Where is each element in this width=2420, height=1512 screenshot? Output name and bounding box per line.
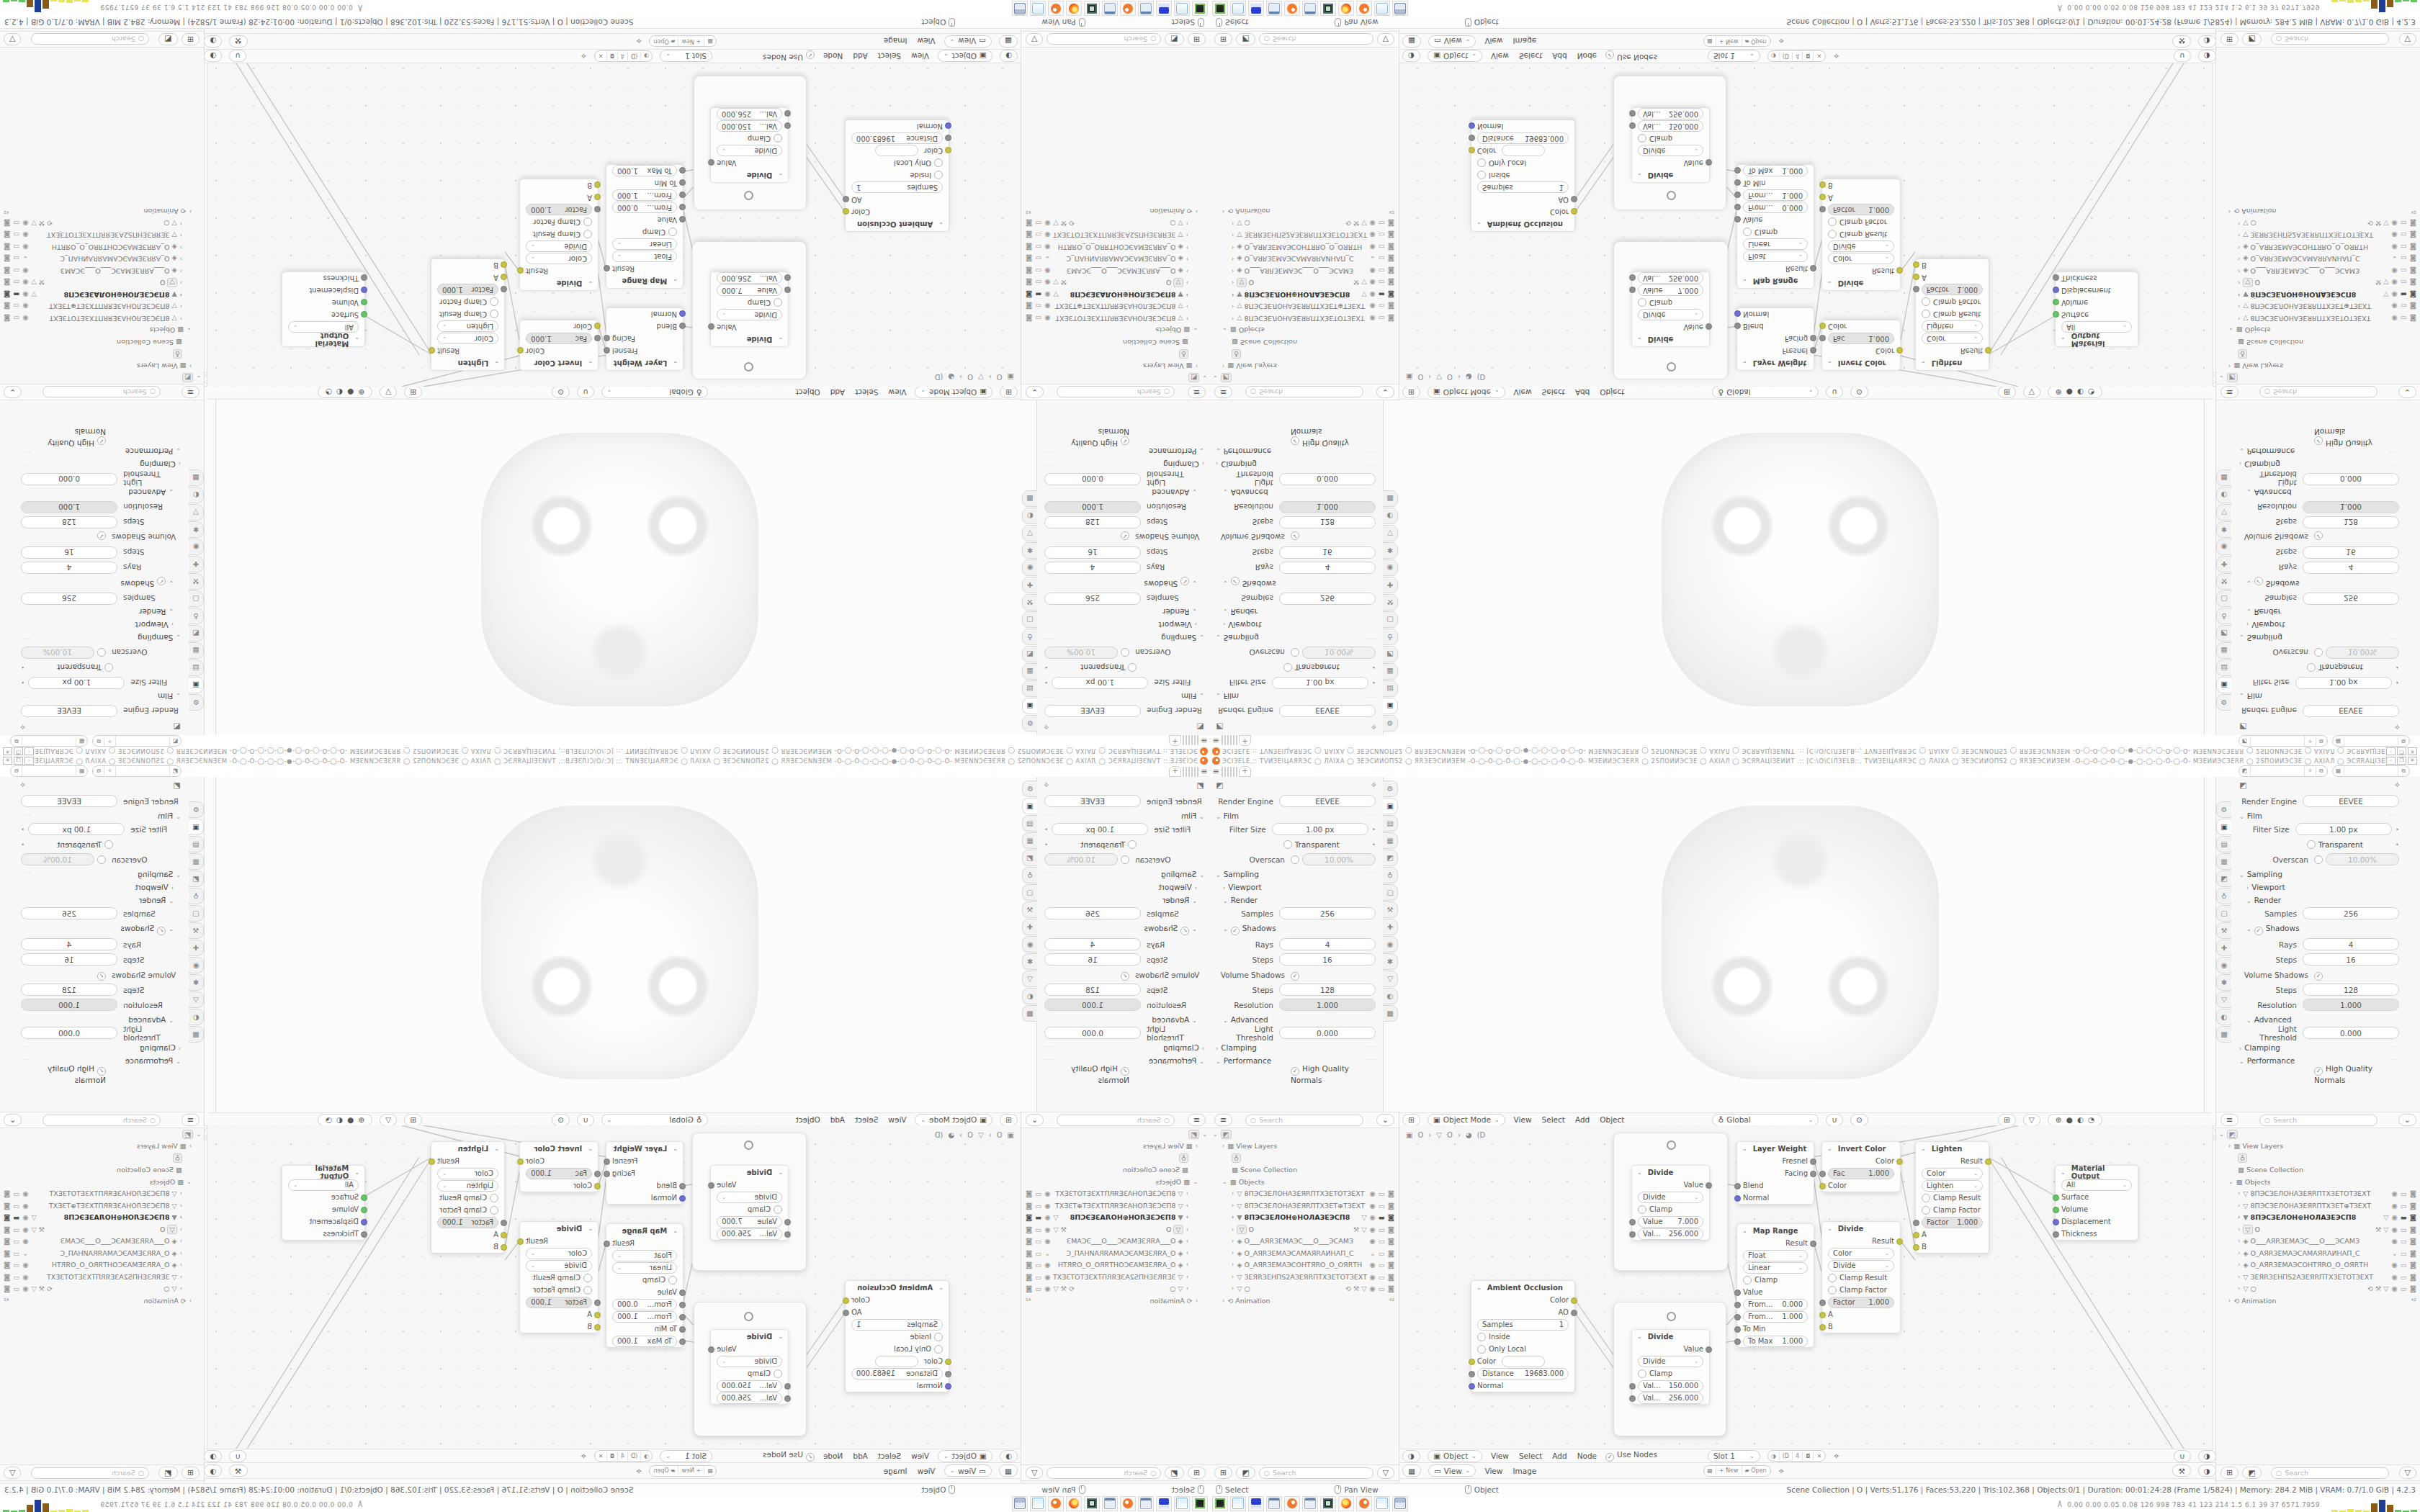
tool-dropdown[interactable]: ⚒ [229,1464,247,1477]
outliner-row[interactable]: ▩Scene Collection [0,1164,204,1176]
outliner-row[interactable]: ›▽8ПЭСЗЕЛОНАЗЕЯRПТХЗЕТ⊕ТЗЕХТ◉▭◙ [1210,1200,1399,1212]
menu-view[interactable]: View [1512,1115,1533,1124]
menu-hamburger-icon[interactable]: ≡ [1198,767,1210,777]
outliner-row[interactable]: ›◈O_АЯRЗЕМАЭСАМАЯRАИНАП_С⌄▭◙ [1021,253,1210,266]
menu-view[interactable]: View [1512,388,1533,397]
tool-dropdown[interactable]: ⚒ [229,35,247,48]
property-tab-icon[interactable]: ✚ [1383,919,1398,935]
pin-icon[interactable]: ✧ [1043,722,1049,732]
steps-field[interactable]: 16 [2303,546,2399,559]
outliner-row[interactable]: ›▽ЗЕЯRЗЕНПЅ2АЗЕЯRПТХЗЕТОТЗЕХТ◉▭◙ [0,230,204,242]
image-selector[interactable]: ▦ + New ▰ Open [649,36,716,48]
tool-dropdown[interactable]: ⚒ [2172,35,2190,48]
samples-field[interactable]: 256 [1044,593,1141,605]
node-map-range[interactable]: ⌄Map Range Result Float⌄ Linear⌄ Clamp V… [606,1223,684,1348]
advanced-subsection[interactable]: ⌄Advanced [14,487,187,500]
node-divide-math-2[interactable]: ⌄Divide Value Divide⌄ Clamp Val...150.00… [710,107,789,183]
filter-size-field[interactable]: 1.00 px [2295,677,2392,689]
advanced-subsection[interactable]: ⌄Advanced [1037,1012,1210,1025]
advanced-subsection[interactable]: ⌄Advanced [14,1012,187,1025]
target-dropdown[interactable]: All⌄ [288,322,359,333]
property-tab-icon[interactable]: ♁ [189,608,204,624]
property-tab-icon[interactable]: ◐ [189,487,204,503]
outliner-row[interactable]: ›▼8ПЭСЗЕЛОН⊕НОЛАЗЕЭСП8▽◉▬◙ [2216,1212,2420,1224]
node-divide-math-2[interactable]: ⌄Divide Value Divide⌄ Clamp Val...150.00… [710,1329,789,1405]
image-id-selector[interactable]: ▦⧉ [2332,736,2410,747]
3d-viewport[interactable] [215,400,1021,735]
property-tab-icon[interactable]: ◩ [1383,646,1398,662]
shading-buttons[interactable]: ⊕●◐◔ [318,387,372,399]
outliner-row[interactable]: ›◈O___АЯRЗЕМАЭС___O___ЭСАМЗ◉▭◙ [1021,1236,1210,1248]
orientation-dropdown[interactable]: ♁Global⌄ [601,1114,708,1126]
outliner-row[interactable]: ▩Scene Collection [2216,336,2420,348]
clamp-checkbox[interactable]: Clamp [642,228,665,236]
property-tab-icon[interactable]: ▩ [1383,1005,1398,1022]
workspace-tab[interactable] [1197,767,1198,777]
color-swatch[interactable] [1502,1356,1545,1367]
outliner-row[interactable]: ›▽ЗЕЯRЗЕНПЅ2АЗЕЯRПТХЗЕТОТЗЕХТ◉▭◙ [0,1271,204,1283]
outliner-row[interactable]: ⌄◩ [0,372,204,384]
material-id-selector[interactable]: ◩✧⧉ [2238,765,2328,777]
calculator2-icon[interactable] [1302,1496,1318,1511]
console-app-icon[interactable] [1192,1496,1208,1511]
scene-dropdown[interactable]: ◩ [1165,33,1183,45]
render-engine-dropdown[interactable]: EEVEE [1044,795,1141,807]
outliner-row[interactable]: ›▽8ПЭСЗЕЛОНАЗЕЯRПТХЗЕТ⊕ТЗЕХТ◉▭◙ [2216,1200,2420,1212]
clamp-factor-checkbox[interactable]: Clamp Factor [533,1286,581,1294]
property-tab-icon[interactable]: ▢ [1022,611,1037,628]
property-tab-icon[interactable]: ◩ [1022,646,1037,662]
node-material-output[interactable]: ⌄Material Output All⌄ Surface Volume Dis… [2055,1165,2138,1241]
clamp-checkbox[interactable]: Clamp [1649,135,1672,143]
outliner-row[interactable]: ⌄▩Objects [1210,325,1399,337]
mode-dropdown[interactable]: ▣Object Mode⌄ [915,387,992,399]
open-image-button[interactable]: ▰ Open [1742,1466,1770,1475]
filter-dropdown[interactable]: ▽ [4,1467,21,1479]
display-mode-dropdown[interactable]: ⊞ [181,33,200,45]
shading-buttons[interactable]: ⊕●◐◔ [318,1114,372,1126]
display-mode-dropdown[interactable]: ≡ [2220,386,2238,398]
menu-node[interactable]: Node [1576,52,1598,60]
property-tab-icon[interactable]: ▽ [1383,971,1398,987]
operation-dropdown[interactable]: Divide⌄ [1638,1192,1703,1203]
fax-printer-icon[interactable] [1012,1496,1028,1511]
property-tab-icon[interactable]: ✱ [1022,953,1037,970]
property-tab-icon[interactable]: ◉ [1383,936,1398,953]
outliner-row[interactable]: ›◈O___АЯRЗЕМАЭС___O___ЭСАМЗ◉▭◙ [1210,1236,1399,1248]
material-id-selector[interactable]: ◩✧⧉ [2238,736,2328,747]
outliner-row[interactable]: ›⟲Animation⁴² [0,206,204,218]
steps-field[interactable]: 16 [1279,546,1376,559]
calculator-icon[interactable] [1138,1496,1154,1511]
outliner-row[interactable]: ⌄▩Objects [0,325,204,337]
node-divide-math-1[interactable]: ⌄Divide Value Divide⌄ Clamp Value7.000 V… [1631,271,1710,347]
outliner-row[interactable]: ›▽8ПЭСЗЕЛОНАЗЕЯRПТХЗЕТОТЗЕХТ◉▭◙ [0,312,204,325]
property-tab-icon[interactable]: ⚒ [1383,901,1398,918]
property-tab-icon[interactable]: ▩ [2216,1026,2231,1043]
outliner-row[interactable]: ›▦View Layers [1021,360,1210,372]
property-tab-icon[interactable]: ▢ [1383,884,1398,901]
menu-view[interactable]: View [1489,52,1510,60]
menu-hamburger-icon[interactable]: ≡ [1210,735,1222,745]
property-tab-icon[interactable]: ✚ [1022,577,1037,593]
image-id-selector[interactable]: ▦⧉ [10,765,88,777]
outliner-row[interactable]: ›◈O_АЯRЗЕМАЭСОНТЯRО_О_ОЯRТН◉▭◙ [1210,241,1399,253]
property-tab-icon[interactable]: ✚ [189,556,204,572]
outliner-tree[interactable]: ⌄◩›▦View Layers♁▩Scene Collection⌄▩Objec… [0,206,204,384]
overscan-checkbox[interactable]: 10.00% [1291,853,1376,865]
slot-dropdown[interactable]: Slot 1⌄ [1708,50,1760,63]
menu-select[interactable]: Select [1518,1452,1543,1460]
filter-size-field[interactable]: 1.00 px [28,677,125,689]
pin-icon[interactable]: ✧ [1371,722,1377,732]
viewport-subsection[interactable]: ›Viewport [1037,619,1210,632]
outliner-row[interactable]: ›◈O___АЯRЗЕМАЭС___O___ЭСАМЗ◉▭◙ [2216,265,2420,277]
outliner-row[interactable]: ›▼8ПЭСЗЕЛОН⊕НОЛАЗЕЭСП8▽◉▬◙ [0,289,204,301]
outliner-row[interactable]: ›▽O⚒ ▽◉▭◙ [2216,1223,2420,1236]
clamp-factor-checkbox[interactable]: Clamp Factor [1839,218,1887,226]
property-tab-icon[interactable]: ◐ [189,1009,204,1025]
shadows-subsection[interactable]: ⌄✓Shadows [2233,575,2406,591]
film-section[interactable]: ⌄Film···· [2233,809,2406,822]
scene-dropdown[interactable]: ◩ [158,33,177,45]
property-tab-icon[interactable]: ⚒ [2216,573,2231,590]
reroute-node[interactable] [744,1312,753,1321]
data-type-dropdown[interactable]: Float⌄ [612,251,677,263]
workspace-tab[interactable] [1222,735,1223,745]
blend-mode-dropdown[interactable]: Divide⌄ [526,241,592,253]
console-app-icon[interactable] [1192,1,1208,17]
outliner-row[interactable]: ›▦View Layers [0,360,204,372]
image-view-dropdown[interactable]: ▭View⌄ [944,35,992,48]
overlay-dropdown[interactable]: ◑ [2198,35,2216,48]
workspace-tab[interactable] [1224,735,1226,745]
film-section[interactable]: ⌄Film···· [1210,809,1383,822]
film-section[interactable]: ⌄Film···· [1037,690,1210,703]
outliner-row[interactable]: ›◈O_АЯRЗЕМАЭСОНТЯRО_О_ОЯRТН◉▭◙ [0,241,204,253]
outliner-row[interactable]: ›▦View Layers [2216,1140,2420,1153]
outliner-row[interactable]: ♁ [1210,348,1399,361]
image-selector[interactable]: ▦ + New ▰ Open [1703,1465,1770,1477]
property-tab-icon[interactable]: ▽ [2216,504,2231,521]
outliner-row[interactable]: ›◈O___АЯRЗЕМАЭС___O___ЭСАМЗ◉▭◙ [0,265,204,277]
property-tab-icon[interactable]: ▤ [1022,680,1037,697]
image-selector[interactable]: ▦ + New ▰ Open [649,1465,716,1477]
clamping-section[interactable]: ›Clamping···· [1037,459,1210,472]
outliner-row[interactable]: ›◈O_АЯRЗЕМАЭСОНТЯRО_О_ОЯRТН◉▭◙ [1021,1259,1210,1272]
sampling-section[interactable]: ⌄Sampling···· [1210,867,1383,880]
snap-toggle[interactable]: ∪ [229,50,246,63]
volume-shadows-checkbox[interactable]: ✓ [1291,532,1376,544]
menu-view[interactable]: View [1489,1452,1510,1460]
outliner-row[interactable]: ›▽ЗЕЯRЗЕНПЅ2АЗЕЯRПТХЗЕТОТЗЕХТ◉▭◙ [1210,1271,1399,1283]
operation-dropdown[interactable]: Divide⌄ [1638,145,1703,157]
steps-field[interactable]: 16 [2303,953,2399,966]
transparent-checkbox[interactable]: Transparent [28,840,113,849]
outliner-row[interactable]: ›⟲Animation⁴² [2216,1295,2420,1307]
operation-dropdown[interactable]: Divide⌄ [717,145,782,157]
transparent-checkbox[interactable]: Transparent [2307,664,2392,672]
overlay-dropdown[interactable]: ⊞ [404,1114,422,1126]
firefox-icon[interactable] [1066,1496,1082,1511]
property-tab-icon[interactable]: ◐ [2216,487,2231,503]
property-tab-icon[interactable]: ♁ [1022,629,1037,645]
outliner-row[interactable]: ›▽8ПЭСЗЕЛОНАЗЕЯRПТХЗЕТ⊕ТЗЕХТ◉▭◙ [0,301,204,313]
editor-type-dropdown[interactable]: ▦ [1402,35,1421,48]
rays-field[interactable]: 4 [2303,938,2399,950]
node-lighten[interactable]: ⌄Lighten Result Color⌄ Lighten⌄ Clamp Re… [1915,258,1989,371]
inside-checkbox[interactable]: Inside [1489,1333,1510,1341]
clamp-result-checkbox[interactable]: Clamp Result [533,230,581,238]
outliner-row[interactable]: ⌄▩Objects [0,1176,204,1188]
node-lighten[interactable]: ⌄Lighten Result Color⌄ Lighten⌄ Clamp Re… [431,258,505,371]
sampling-section[interactable]: ⌄Sampling···· [14,632,187,645]
clamp-result-checkbox[interactable]: Clamp Result [1839,1274,1887,1282]
property-tab-icon[interactable]: ✚ [2216,940,2231,956]
blender2-icon[interactable] [1048,1496,1064,1511]
add-workspace-button[interactable]: + [1169,735,1181,746]
clamp-factor-checkbox[interactable]: Clamp Factor [439,1206,487,1214]
menu-hamburger-icon[interactable]: ≡ [1210,767,1222,777]
target-dropdown[interactable]: All⌄ [288,1179,359,1191]
node-material-output[interactable]: ⌄Material Output All⌄ Surface Volume Dis… [282,1165,365,1241]
viewport-subsection[interactable]: ›Viewport [14,880,187,893]
outliner-row[interactable]: ›▼8ПЭСЗЕЛОН⊕НОЛАЗЕЭСП8▽◉▬◙ [1021,289,1210,301]
advanced-subsection[interactable]: ⌄Advanced [1210,487,1383,500]
filter-size-field[interactable]: 1.00 px [28,823,125,835]
viewport-subsection[interactable]: ›Viewport [2233,880,2406,893]
proportional-edit-toggle[interactable]: ⊙ [1850,1114,1868,1126]
property-tab-icon[interactable]: ⚒ [189,922,204,939]
filter-size-field[interactable]: 1.00 px [2295,823,2392,835]
color-swatch[interactable] [1502,145,1545,157]
property-tab-icon[interactable]: ♁ [1383,629,1398,645]
property-tab-strip-left[interactable]: ⚙▣▤▦◩♁▢⚒✚◉✱▽◐▩ [1021,490,1037,732]
steps-field[interactable]: 16 [1044,953,1141,966]
volume-shadows-checkbox[interactable]: ✓ [1044,969,1129,981]
orientation-dropdown[interactable]: ♁Global⌄ [1712,1114,1819,1126]
property-tab-icon[interactable]: ▣ [1383,798,1398,814]
blender-icon[interactable] [1284,1496,1300,1511]
filter-dropdown[interactable]: ⌄ [4,1114,22,1126]
filter-dropdown[interactable]: ⌄ [2398,386,2416,398]
outliner-row[interactable]: ›▽8ПЭСЗЕЛОНАЗЕЯRПТХЗЕТ⊕ТЗЕХТ◉▭◙ [1021,1200,1210,1212]
overscan-checkbox[interactable]: 10.00% [1044,853,1129,865]
shadows-subsection[interactable]: ⌄✓Shadows [1037,575,1210,591]
notepad-icon[interactable] [1230,1496,1246,1511]
property-tab-icon[interactable]: ⚙ [2216,801,2231,818]
film-section[interactable]: ⌄Film···· [14,809,187,822]
outliner-row[interactable]: ›◈O_АЯRЗЕМАЭСОНТЯRО_О_ОЯRТН◉▭◙ [0,1259,204,1272]
minimize-button[interactable]: – [24,747,34,755]
use-nodes-checkbox[interactable]: ✓Use Nodes [1605,50,1657,62]
clamping-section[interactable]: ›Clamping···· [14,1040,187,1053]
overscan-checkbox[interactable]: 10.00% [2314,853,2399,865]
volume-shadows-checkbox[interactable]: ✓ [21,969,106,981]
samples-field[interactable]: 256 [1279,907,1376,919]
menu-view[interactable]: View [887,1115,907,1124]
outliner-row[interactable]: ›▽O⚒ ▽◉▭◙ [0,1223,204,1236]
outliner-row[interactable]: ›▽8ПЭСЗЕЛОНАЗЕЯRПТХЗЕТОТЗЕХТ◉▭◙ [1210,312,1399,325]
property-tab-icon[interactable]: ▽ [1022,525,1037,541]
outliner-row[interactable]: ›▽○⟲ ⚒ ▽◉▭◙ [1021,217,1210,230]
scene-dropdown[interactable]: ◩ [1165,1467,1183,1479]
hq-normals-checkbox[interactable]: ✓High Quality Normals [1291,1064,1376,1084]
outliner-row[interactable]: ›◈O_АЯRЗЕМАЭСОНТЯRО_О_ОЯRТН◉▭◙ [2216,1259,2420,1272]
floppy-64-icon[interactable] [1156,1496,1172,1511]
filter-dropdown[interactable]: ▽ [1026,1467,1043,1479]
minimize-button[interactable]: – [2386,757,2396,765]
only-local-checkbox[interactable]: Only Local [894,159,931,167]
outliner-row[interactable]: ›◈O_АЯRЗЕМАЭСОНТЯRО_О_ОЯRТН◉▭◙ [1210,1259,1399,1272]
volume-shadows-checkbox[interactable]: ✓ [21,532,106,544]
transparent-checkbox[interactable]: Transparent [1283,840,1368,849]
outliner-row[interactable]: ♁ [0,348,204,361]
clamp-checkbox[interactable]: Clamp [748,1369,771,1377]
property-tab-icon[interactable]: ▣ [2216,819,2231,835]
property-tab-icon[interactable]: ▽ [189,991,204,1008]
overscan-checkbox[interactable]: 10.00% [21,853,106,865]
advanced-subsection[interactable]: ⌄Advanced [2233,1012,2406,1025]
outliner-search[interactable]: ○Search [1047,1467,1161,1479]
render-subsection[interactable]: ⌄Render [14,893,187,906]
calculator-icon[interactable] [1266,1,1282,17]
sampling-section[interactable]: ⌄Sampling···· [2233,867,2406,880]
node-layer-weight[interactable]: ⌄Layer Weight Fresnel Facing Blend Norma… [606,1141,684,1205]
property-tab-icon[interactable]: ♁ [2216,888,2231,904]
menu-add[interactable]: Add [1551,1452,1568,1460]
outliner-row[interactable]: ⌄◩ [1210,372,1399,384]
display-mode-dropdown[interactable]: ⊞ [1188,33,1206,45]
menu-add[interactable]: Add [1574,1115,1591,1124]
property-tab-icon[interactable]: ◉ [1022,559,1037,576]
pin-icon[interactable]: ✧ [636,37,642,46]
outliner-row[interactable]: ›▼8ПЭСЗЕЛОН⊕НОЛАЗЕЭСП8▽◉▬◙ [1210,289,1399,301]
property-tab-icon[interactable]: ⚙ [1383,780,1398,797]
menu-view[interactable]: View [887,388,907,397]
node-map-range[interactable]: ⌄Map Range Result Float⌄ Linear⌄ Clamp V… [1736,164,1814,289]
target-dropdown[interactable]: All⌄ [2061,322,2132,333]
overscan-checkbox[interactable]: 10.00% [1044,647,1129,659]
render-subsection[interactable]: ⌄Render [14,606,187,619]
outliner-row[interactable]: ›▽8ПЭСЗЕЛОНАЗЕЯRПТХЗЕТ⊕ТЗЕХТ◉▭◙ [0,1200,204,1212]
workspace-tab[interactable] [1183,735,1184,745]
shadows-subsection[interactable]: ⌄✓Shadows [2233,921,2406,937]
outliner-row[interactable]: ›◈O_АЯRЗЕМАЭСАМАЯRАИНАП_С⌄▭◙ [2216,1247,2420,1259]
node-ambient-occlusion[interactable]: ⌄Ambient Occlusion Color AO Samples1 Ins… [1471,1280,1575,1392]
pin-icon[interactable]: ✧ [581,52,587,60]
monitor-app-icon[interactable] [1084,1,1100,17]
menu-add[interactable]: Add [851,1452,869,1460]
fax-printer-icon[interactable] [1392,1496,1408,1511]
menu-select[interactable]: Select [853,388,879,397]
node-invert-color[interactable]: ⌄Invert Color Color Fac1.000 Color [519,320,599,371]
blender-icon[interactable] [1284,1,1300,17]
use-nodes-checkbox[interactable]: ✓Use Nodes [1605,1450,1657,1462]
node-invert-color[interactable]: ⌄Invert Color Color Fac1.000 Color [519,1141,599,1192]
vs-steps-field[interactable]: 128 [2303,984,2399,996]
open-image-button[interactable]: ▰ Open [1742,37,1770,46]
outliner-search[interactable]: ○Search [2271,34,2389,45]
property-tab-icon[interactable]: ▩ [2216,469,2231,486]
close-button[interactable]: ✕ [2408,747,2417,755]
property-tab-icon[interactable]: ▤ [2216,836,2231,852]
property-tab-icon[interactable]: ▦ [1022,663,1037,680]
outliner-row[interactable]: ›⟲Animation⁴² [1021,1295,1210,1307]
resolution-field[interactable]: 1.000 [2303,999,2399,1011]
property-tab-icon[interactable]: ▦ [2216,642,2231,659]
snap-toggle[interactable]: ∪ [577,387,594,399]
transparent-checkbox[interactable]: Transparent [28,664,113,672]
outliner-row[interactable]: ›▽O⚒ ▽◉▭◙ [2216,277,2420,289]
clamp-result-checkbox[interactable]: Clamp Result [1933,310,1981,318]
clamping-section[interactable]: ›Clamping···· [1210,1040,1383,1053]
transparent-checkbox[interactable]: Transparent [1052,840,1137,849]
rays-field[interactable]: 4 [1279,938,1376,950]
outliner-row[interactable]: ›▽8ПЭСЗЕЛОНАЗЕЯRПТХЗЕТ⊕ТЗЕХТ◉▭◙ [1210,301,1399,313]
close-button[interactable]: ✕ [3,757,12,765]
snap-toggle[interactable]: ∪ [1826,387,1843,399]
property-tab-icon[interactable]: ▢ [189,590,204,607]
node-ambient-occlusion[interactable]: ⌄Ambient Occlusion Color AO Samples1 Ins… [845,120,949,232]
shader-context-dropdown[interactable]: ▣Object⌄ [938,50,992,63]
display-mode-dropdown[interactable]: ≡ [1188,386,1206,398]
reroute-node[interactable] [1667,362,1676,372]
image-selector[interactable]: ▦ + New ▰ Open [1703,36,1770,48]
overlay-dropdown[interactable]: ◑ [2198,50,2216,63]
operation-dropdown[interactable]: Divide⌄ [1638,310,1703,321]
property-tab-icon[interactable]: ◐ [1022,508,1037,524]
display-mode-dropdown[interactable]: ⊞ [181,1467,200,1479]
node-lighten[interactable]: ⌄Lighten Result Color⌄ Lighten⌄ Clamp Re… [1915,1141,1989,1254]
calculator-icon[interactable] [1138,1,1154,17]
outliner-row[interactable]: ⌄▩Objects [2216,1176,2420,1188]
property-tab-icon[interactable]: ⚙ [1022,715,1037,732]
shadows-subsection[interactable]: ⌄✓Shadows [1210,575,1383,591]
calculator2-icon[interactable] [1102,1496,1118,1511]
outliner-row[interactable]: ›▦View Layers [2216,360,2420,372]
property-tab-strip-right[interactable]: ⚙▣▤▦◩♁▢⚒✚◉✱▽◐▩ [188,801,204,1043]
display-mode-dropdown[interactable]: ≡ [1188,1114,1206,1126]
data-type-dropdown[interactable]: Color⌄ [437,333,498,345]
outliner-row[interactable]: ›▼8ПЭСЗЕЛОН⊕НОЛАЗЕЭСП8▽◉▬◙ [1210,1212,1399,1224]
outliner-row[interactable]: ›◈O___АЯRЗЕМАЭС___O___ЭСАМЗ◉▭◙ [1210,265,1399,277]
samples-field[interactable]: 256 [2303,907,2399,919]
sampling-section[interactable]: ⌄Sampling···· [1210,632,1383,645]
clamp-factor-checkbox[interactable]: Clamp Factor [1933,298,1981,306]
monitor-app-icon[interactable] [1320,1,1336,17]
open-image-button[interactable]: ▰ Open [650,1466,678,1475]
workspace-tab[interactable] [1230,767,1232,777]
outliner-row[interactable]: ♁ [2216,1152,2420,1164]
clamp-checkbox[interactable]: Clamp [748,135,771,143]
property-tab-icon[interactable]: ♁ [2216,608,2231,624]
outliner-row[interactable]: ⌄◩ [2216,1128,2420,1140]
outliner-row[interactable]: ⌄◩ [1021,372,1210,384]
reroute-node[interactable] [744,191,753,200]
property-tab-icon[interactable]: ▣ [1383,698,1398,714]
console-app-icon[interactable] [1212,1496,1228,1511]
outliner-row[interactable]: ›▽ЗЕЯRЗЕНПЅ2АЗЕЯRПТХЗЕТОТЗЕХТ◉▭◙ [2216,1271,2420,1283]
workspace-tab[interactable] [1236,767,1237,777]
blender2-icon[interactable] [1356,1496,1372,1511]
property-tab-icon[interactable]: ▢ [189,905,204,922]
mode-dropdown[interactable]: ▣Object Mode⌄ [1428,1114,1505,1126]
outliner-tree[interactable]: ⌄◩›▦View Layers♁▩Scene Collection⌄▩Objec… [1021,1128,1210,1307]
rays-field[interactable]: 4 [1044,562,1141,574]
samples-field[interactable]: 256 [1279,593,1376,605]
outliner-tree[interactable]: ⌄◩›▦View Layers♁▩Scene Collection⌄▩Objec… [2216,206,2420,384]
